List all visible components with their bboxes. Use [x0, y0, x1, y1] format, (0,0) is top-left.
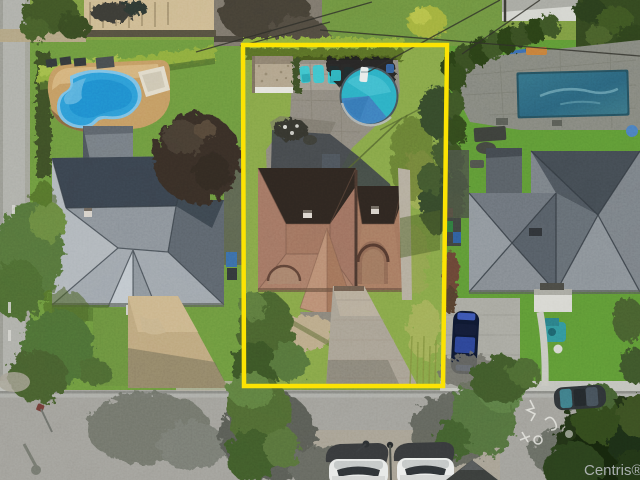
- svg-text:Centris®: Centris®: [584, 462, 640, 479]
